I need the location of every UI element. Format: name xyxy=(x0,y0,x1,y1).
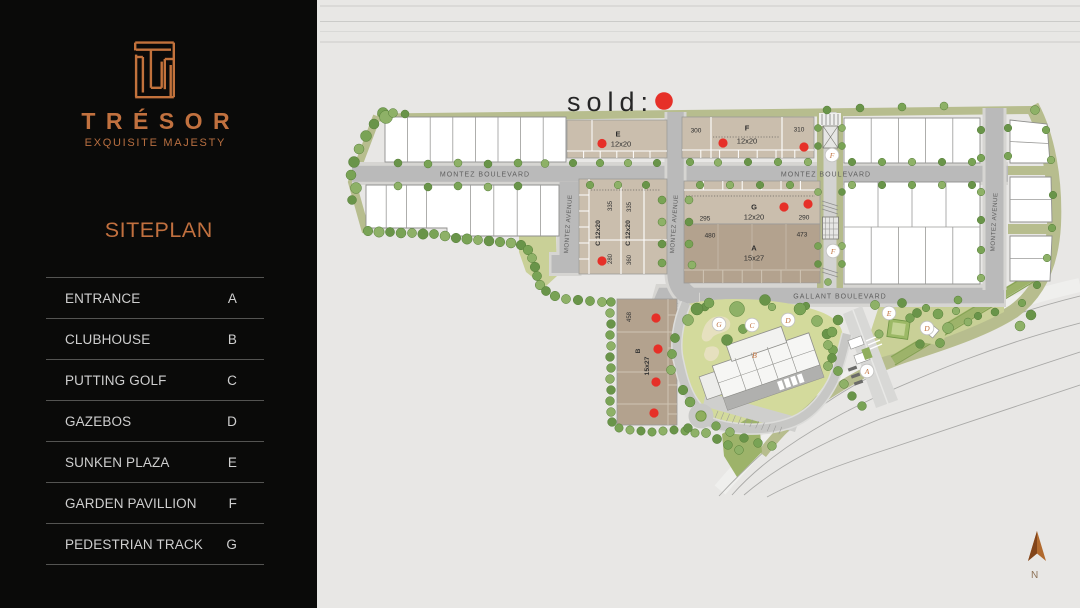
svg-text:F: F xyxy=(829,151,835,160)
svg-text:480: 480 xyxy=(705,233,716,240)
svg-text:310: 310 xyxy=(794,127,805,134)
svg-text:12x20: 12x20 xyxy=(737,137,757,146)
svg-text:360: 360 xyxy=(627,254,633,265)
svg-text:D: D xyxy=(784,316,791,325)
svg-text:C 12x20: C 12x20 xyxy=(625,220,632,246)
svg-text:458: 458 xyxy=(627,311,633,322)
svg-text:G: G xyxy=(751,203,757,212)
svg-text:335: 335 xyxy=(627,201,633,212)
svg-text:F: F xyxy=(830,247,836,256)
svg-text:A: A xyxy=(864,367,870,376)
svg-text:B: B xyxy=(752,351,757,360)
svg-text:F: F xyxy=(745,124,750,133)
svg-text:GALLANT BOULEVARD: GALLANT BOULEVARD xyxy=(793,294,886,301)
svg-text:E: E xyxy=(615,130,620,139)
svg-text:290: 290 xyxy=(799,215,810,222)
svg-text:A: A xyxy=(751,244,757,253)
svg-text:15x27: 15x27 xyxy=(644,356,651,375)
svg-text:D: D xyxy=(923,324,930,333)
svg-text:335: 335 xyxy=(608,200,614,211)
svg-text:15x27: 15x27 xyxy=(744,254,764,263)
svg-text:MONTEZ BOULEVARD: MONTEZ BOULEVARD xyxy=(781,172,871,179)
svg-text:12x20: 12x20 xyxy=(611,140,631,149)
svg-text:E: E xyxy=(886,309,892,318)
svg-text:300: 300 xyxy=(691,128,702,135)
svg-text:473: 473 xyxy=(797,232,808,239)
svg-text:MONTEZ BOULEVARD: MONTEZ BOULEVARD xyxy=(440,172,530,179)
svg-text:sold:: sold: xyxy=(567,87,654,117)
svg-text:N: N xyxy=(1031,570,1038,581)
svg-text:295: 295 xyxy=(700,216,711,223)
svg-text:G: G xyxy=(716,320,722,329)
svg-text:B: B xyxy=(635,348,642,353)
svg-text:280: 280 xyxy=(608,253,614,264)
svg-text:12x20: 12x20 xyxy=(744,213,764,222)
svg-text:C 12x20: C 12x20 xyxy=(595,220,602,246)
